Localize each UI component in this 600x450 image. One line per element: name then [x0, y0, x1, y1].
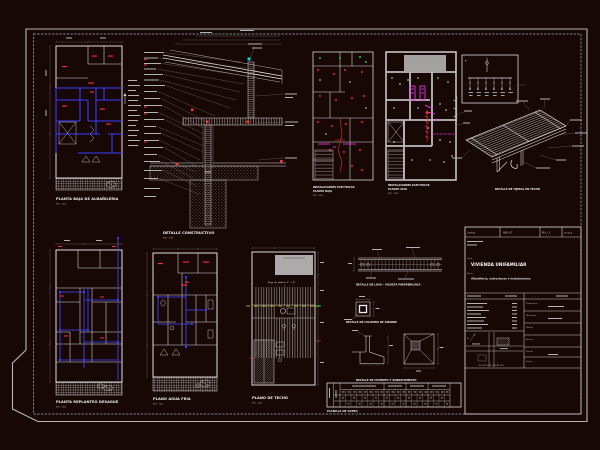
plan-planta-baja: PLANTA BAJA DE ALBAÑILERIA ESC. 1/50 — [46, 38, 142, 206]
slab-band — [183, 118, 282, 125]
detail-tijeral: DETALLE DE TIJERAL EN TECHO — [452, 96, 587, 191]
truss-column — [248, 62, 254, 118]
tb-header-1: LAMINA — [467, 232, 476, 235]
top-dimensions — [175, 30, 282, 44]
caption-elec-pb-2: PLANTA BAJA — [313, 189, 332, 193]
tb-header-3: PLA.- 2 — [542, 232, 551, 235]
floor-hatch — [56, 178, 122, 190]
tb-field-fecha: Fecha: — [526, 361, 533, 363]
detail-zapata: DETALLE DE CIMIENTO Y SOBRECIMIENTO — [352, 330, 444, 382]
tb-field-ubicacion: Ubicacion: — [526, 315, 537, 317]
tb-header-4: ESCALA — [564, 232, 573, 235]
floor-hatch-replanteo — [56, 382, 122, 395]
title-block: LAMINA ARQ.-07 PLA.- 2 ESCALA Obra: VIVI… — [465, 227, 581, 414]
tb-obra-label: Obra: — [467, 257, 473, 260]
plan-replanteo: PLANTA REPLANTEO DESAGUE ESC. 1/50 — [49, 237, 123, 409]
caption-planilla: PLANILLA DE ACERO — [327, 409, 358, 413]
walls-white — [56, 46, 122, 188]
tb-location-sketch: N CROQUIS DE UBICACION — [466, 332, 523, 367]
caption-elec-pb-1: INSTALACIONES ELECTRICAS — [313, 185, 355, 189]
caption-planta-baja: PLANTA BAJA DE ALBAÑILERIA — [56, 196, 119, 201]
scale-techo: ESC. 1/50 — [252, 403, 263, 405]
detail-columna: DETALLE DE COLUMNA DE AMARRE — [344, 296, 397, 324]
scale-agua: ESC. 1/50 — [153, 404, 164, 406]
magenta-runs — [318, 144, 356, 147]
right-leaders — [456, 111, 472, 126]
tb-field-propietario: Propietario: — [526, 302, 538, 305]
unifilar-label: M — [465, 61, 467, 63]
scale-replanteo: ESC. 1/50 — [56, 407, 67, 409]
stair-arrow-red — [425, 111, 429, 143]
scale-planta-baja: ESC. 1/50 — [56, 204, 67, 206]
tb-croquis-caption: CROQUIS DE UBICACION — [478, 364, 504, 367]
plumbing-blue — [60, 238, 118, 380]
magenta-fixtures — [410, 86, 456, 134]
tb-project-title: VIVIENDA UNIFAMILIAR — [471, 262, 527, 267]
detail-constructivo: DETALLE CONSTRUCTIVO ESC. 1/10 — [144, 30, 298, 240]
schedule-table: PLANILLA DE ACERO — [327, 383, 461, 413]
diagram-unifilar: M — [462, 55, 526, 103]
caption-detalle: DETALLE CONSTRUCTIVO — [163, 231, 214, 235]
caption-vigueta: DETALLE DE LOSA - VIGUETA PREFABRICADA — [356, 283, 420, 287]
tb-field-escala: Escala: — [526, 351, 534, 353]
green-dots — [319, 56, 367, 63]
roof-note: Viga de madera 2" x 6" — [268, 282, 296, 284]
unifilar-drops — [469, 78, 511, 90]
plan-electricas-pb: INSTALACIONES ELECTRICAS PLANTA BAJA ESC… — [313, 52, 373, 197]
walls-blue — [56, 88, 122, 153]
lattice — [358, 259, 442, 269]
caption-elec-pa-2: PLANTA ALTA — [388, 187, 407, 191]
unifilar-microlabels — [469, 92, 514, 96]
floor-hatch-agua — [153, 377, 217, 391]
tb-plano-label: Plano: — [467, 273, 474, 275]
scale-detalle: ESC. 1/10 — [163, 238, 174, 240]
annotation-list — [128, 80, 141, 146]
tb-field-reviso: Reviso: — [526, 339, 534, 341]
tb-strip-labels — [467, 296, 568, 297]
x-box — [388, 122, 404, 142]
tb-field-dibujo: Dibujo: — [526, 327, 534, 329]
plan-electricas-pa: INSTALACIONES ELECTRICAS PLANTA ALTA ESC… — [386, 52, 472, 195]
vigueta-leaders — [366, 247, 420, 280]
stair-hatch-pa — [388, 150, 404, 178]
detail-vigueta: DETALLE DE LOSA - VIGUETA PREFABRICADA — [348, 247, 442, 287]
section-marker — [124, 93, 127, 104]
tb-specs-list — [467, 303, 517, 329]
tb-plano-desc: Albañileria, estructuras e instalaciones — [471, 277, 531, 281]
caption-agua: PLANO AGUA FRIA — [153, 397, 191, 401]
roof-lines — [163, 50, 282, 84]
tb-header-2: ARQ.-07 — [503, 232, 513, 235]
caption-columna: DETALLE DE COLUMNA DE AMARRE — [346, 320, 397, 324]
caption-tijeral: DETALLE DE TIJERAL EN TECHO — [495, 187, 541, 191]
tb-owner-lines — [467, 241, 483, 246]
room-labels-agua — [158, 262, 209, 286]
caption-replanteo: PLANTA REPLANTEO DESAGUE — [56, 400, 119, 404]
scale-elec-pa: ESC. 1/50 — [388, 193, 399, 195]
tb-north-label: N — [467, 338, 469, 340]
caption-zapata: DETALLE DE CIMIENTO Y SOBRECIMIENTO — [356, 378, 417, 382]
terrace-slab — [404, 55, 446, 71]
zapata-plan — [403, 333, 444, 372]
caption-techo: PLANO DE TECHO — [252, 396, 288, 400]
dimension-lines — [46, 38, 124, 180]
zapata-section — [352, 336, 384, 366]
tb-fields-column: Propietario: Ubicacion: Dibujo: Reviso: … — [524, 302, 581, 363]
drawing-canvas: PLANTA BAJA DE ALBAÑILERIA ESC. 1/50 — [0, 0, 600, 450]
plan-agua: PLANO AGUA FRIA ESC. 1/50 — [146, 248, 218, 406]
center-column — [203, 125, 213, 172]
scale-elec-pb: ESC. 1/50 — [313, 195, 324, 197]
plan-techo: Viga de madera 2" x 6" PLANO DE TECHO ES… — [246, 247, 324, 405]
caption-elec-pa-1: INSTALACIONES ELECTRICAS — [388, 183, 430, 187]
outlets-white — [319, 79, 367, 135]
red-marks — [144, 59, 283, 165]
right-annotations — [248, 44, 298, 161]
foundation-concrete — [150, 166, 258, 228]
ground-lines — [150, 163, 286, 166]
cad-sheet: PLANTA BAJA DE ALBAÑILERIA ESC. 1/50 — [0, 0, 600, 450]
stair-hatch — [315, 150, 333, 180]
